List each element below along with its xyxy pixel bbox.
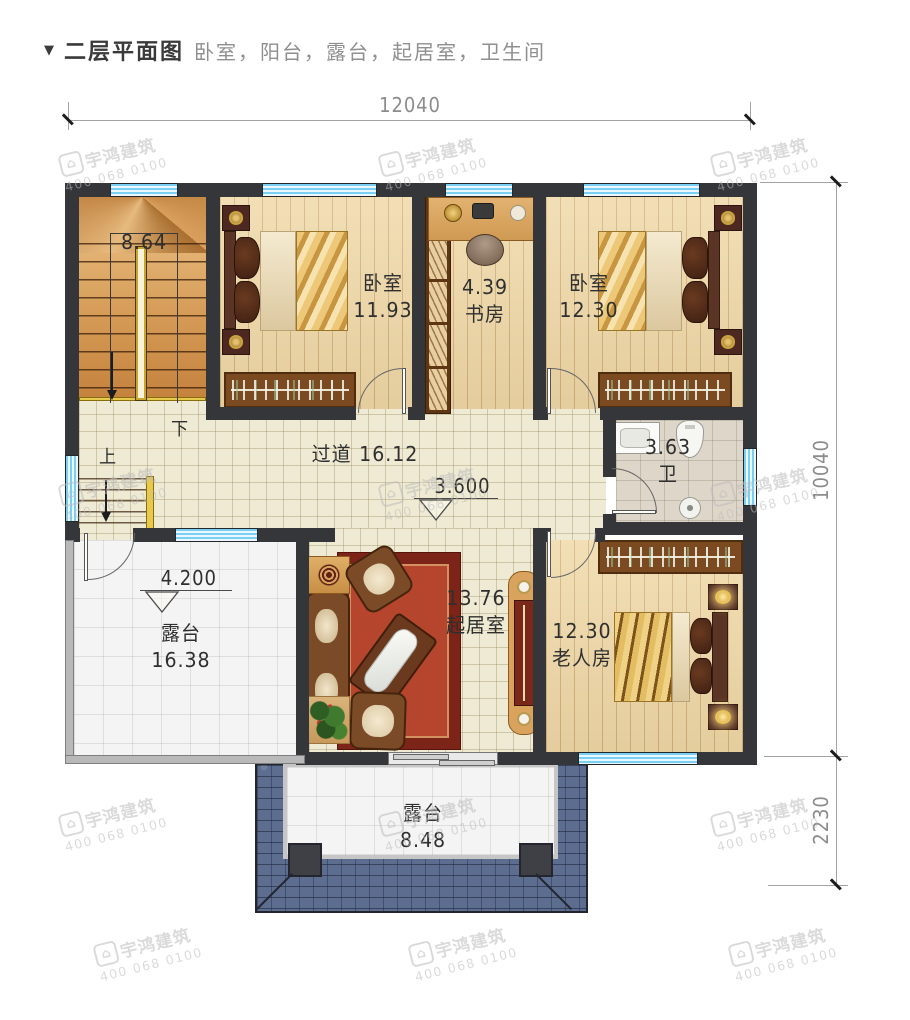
watermark-logo-icon: ⌂ bbox=[709, 810, 737, 838]
potted-plant bbox=[306, 696, 350, 744]
wall-segment bbox=[206, 183, 220, 420]
room-area: 11.93 bbox=[346, 297, 420, 324]
dimension-height-main: 10040 bbox=[809, 430, 833, 511]
watermark-logo-icon: ⌂ bbox=[92, 940, 120, 968]
tv-screen bbox=[514, 600, 534, 706]
wall-segment bbox=[743, 506, 757, 765]
bed-sheet bbox=[672, 612, 690, 702]
nightstand bbox=[222, 329, 250, 355]
elevation-triangle-icon bbox=[144, 590, 180, 614]
sliding-door bbox=[388, 752, 498, 765]
dimension-line-top bbox=[68, 120, 750, 121]
desk-phone bbox=[510, 205, 526, 221]
pillow bbox=[690, 658, 712, 694]
stair-up-label: 上 bbox=[97, 446, 120, 470]
window bbox=[65, 455, 79, 522]
pillow bbox=[234, 281, 260, 323]
desk-kettle bbox=[472, 203, 494, 219]
room-name: 老人房 bbox=[544, 645, 620, 672]
elevation-value: 4.200 bbox=[145, 566, 228, 590]
section-marker-icon: ▼ bbox=[44, 43, 54, 58]
bed-sheet bbox=[260, 231, 296, 331]
dimension-line-right bbox=[836, 182, 837, 886]
pillow bbox=[234, 237, 260, 279]
extension-line bbox=[68, 102, 69, 130]
bed-sheet bbox=[646, 231, 682, 331]
stair-handrail bbox=[136, 247, 146, 400]
room-area: 16.12 bbox=[359, 441, 418, 468]
stair-down-label: 下 bbox=[169, 418, 192, 442]
watermark-logo-icon: ⌂ bbox=[57, 150, 85, 178]
room-name: 书房 bbox=[450, 301, 520, 328]
wardrobe bbox=[598, 540, 743, 574]
page-header: ▼ 二层平面图 卧室，阳台，露台，起居室，卫生间 bbox=[44, 34, 546, 66]
nightstand bbox=[222, 205, 250, 231]
elder-room-label: 12.30 老人房 bbox=[544, 618, 620, 672]
floor-plan-canvas: ▼ 二层平面图 卧室，阳台，露台，起居室，卫生间 12040 10040 223… bbox=[0, 0, 910, 1020]
hallway-label: 过道 16.12 bbox=[301, 441, 428, 468]
watermark-logo-icon: ⌂ bbox=[377, 150, 405, 178]
cabinet-knob bbox=[517, 580, 531, 594]
armchair bbox=[349, 691, 407, 751]
watermark-logo-icon: ⌂ bbox=[709, 150, 737, 178]
desk-lamp bbox=[444, 204, 462, 222]
window bbox=[578, 752, 698, 765]
watermark-logo-icon: ⌂ bbox=[407, 940, 435, 968]
dimension-height-terrace: 2230 bbox=[809, 784, 833, 856]
wall-segment bbox=[408, 407, 425, 420]
wall-segment bbox=[603, 522, 757, 535]
bed-headboard bbox=[708, 231, 720, 329]
elevation-triangle-icon bbox=[418, 498, 454, 522]
window bbox=[110, 183, 178, 197]
nightstand bbox=[714, 205, 742, 231]
watermark-logo-icon: ⌂ bbox=[727, 940, 755, 968]
room-name: 卫 bbox=[640, 461, 697, 488]
brand-watermark: ⌂宇鸿建筑400 068 0100 bbox=[727, 913, 865, 985]
page-subtitle: 卧室，阳台，露台，起居室，卫生间 bbox=[194, 36, 546, 65]
room-area: 16.38 bbox=[140, 647, 222, 674]
wall-segment bbox=[698, 752, 757, 765]
elevation-marker-hall: 3.600 bbox=[414, 474, 498, 522]
window bbox=[445, 183, 513, 197]
wall-segment bbox=[302, 752, 390, 765]
room-area: 4.39 bbox=[450, 274, 520, 301]
wall-segment bbox=[498, 752, 578, 765]
room-name: 卧室 bbox=[346, 270, 420, 297]
terrace-parapet bbox=[65, 755, 305, 764]
stairwell-area-label: 8.64 bbox=[108, 229, 180, 256]
elevation-marker-terrace: 4.200 bbox=[140, 566, 232, 614]
stair-direction-arrow bbox=[100, 480, 112, 527]
study-label: 4.39 书房 bbox=[450, 274, 520, 328]
stair-guide-line bbox=[177, 233, 178, 403]
wall-segment bbox=[65, 183, 79, 455]
brand-watermark: ⌂宇鸿建筑400 068 0100 bbox=[407, 913, 545, 985]
cabinet-knob bbox=[517, 712, 531, 726]
living-room-label: 13.76 起居室 bbox=[438, 585, 514, 639]
wall-segment bbox=[133, 528, 175, 542]
room-name: 过道 bbox=[312, 441, 352, 468]
bedroom-top-left-label: 卧室 11.93 bbox=[346, 270, 420, 324]
bed-blanket bbox=[614, 612, 672, 702]
window bbox=[262, 183, 377, 197]
page-title: 二层平面图 bbox=[64, 34, 184, 66]
wall-segment bbox=[206, 407, 356, 420]
nightstand bbox=[714, 329, 742, 355]
bedroom-top-right-label: 卧室 12.30 bbox=[550, 270, 628, 324]
bed-blanket bbox=[296, 231, 348, 331]
side-table bbox=[308, 556, 350, 594]
extension-line bbox=[750, 102, 751, 130]
stair-direction-arrow bbox=[106, 352, 118, 405]
terrace-parapet bbox=[65, 540, 74, 764]
wall-segment bbox=[296, 528, 309, 765]
bathroom-label: 3.63 卫 bbox=[640, 434, 697, 488]
desk-chair bbox=[466, 234, 504, 266]
window bbox=[175, 528, 258, 542]
nightstand-lamp bbox=[708, 704, 738, 730]
wall-segment bbox=[533, 183, 546, 420]
window bbox=[583, 183, 700, 197]
bed-headboard bbox=[712, 612, 728, 702]
pillow bbox=[682, 237, 708, 279]
room-name: 卧室 bbox=[550, 270, 628, 297]
brand-watermark: ⌂宇鸿建筑400 068 0100 bbox=[57, 783, 195, 855]
nightstand-lamp bbox=[708, 584, 738, 610]
wall-segment bbox=[533, 407, 548, 420]
room-area: 12.30 bbox=[544, 618, 620, 645]
brand-watermark: ⌂宇鸿建筑400 068 0100 bbox=[92, 913, 230, 985]
window bbox=[743, 448, 757, 506]
stair-newel-strip bbox=[146, 476, 154, 532]
room-area: 13.76 bbox=[438, 585, 514, 612]
terrace-bottom-label: 露台 8.48 bbox=[388, 800, 458, 854]
wall-segment bbox=[595, 528, 605, 542]
terrace-post bbox=[288, 843, 322, 877]
room-area: 12.30 bbox=[550, 297, 628, 324]
shower-drain bbox=[679, 497, 701, 519]
wardrobe bbox=[224, 372, 356, 408]
watermark-logo-icon: ⌂ bbox=[57, 810, 85, 838]
wardrobe bbox=[598, 372, 732, 408]
room-area: 3.63 bbox=[640, 434, 697, 461]
pillow bbox=[682, 281, 708, 323]
room-name: 起居室 bbox=[438, 612, 514, 639]
room-name: 露台 bbox=[388, 800, 458, 827]
elevation-value: 3.600 bbox=[418, 474, 494, 498]
dimension-width: 12040 bbox=[347, 93, 473, 117]
terrace-post bbox=[519, 843, 553, 877]
pillow bbox=[690, 618, 712, 654]
terrace-left-label: 露台 16.38 bbox=[140, 620, 222, 674]
wall-segment bbox=[600, 407, 757, 420]
room-name: 露台 bbox=[140, 620, 222, 647]
room-area: 8.48 bbox=[388, 827, 458, 854]
